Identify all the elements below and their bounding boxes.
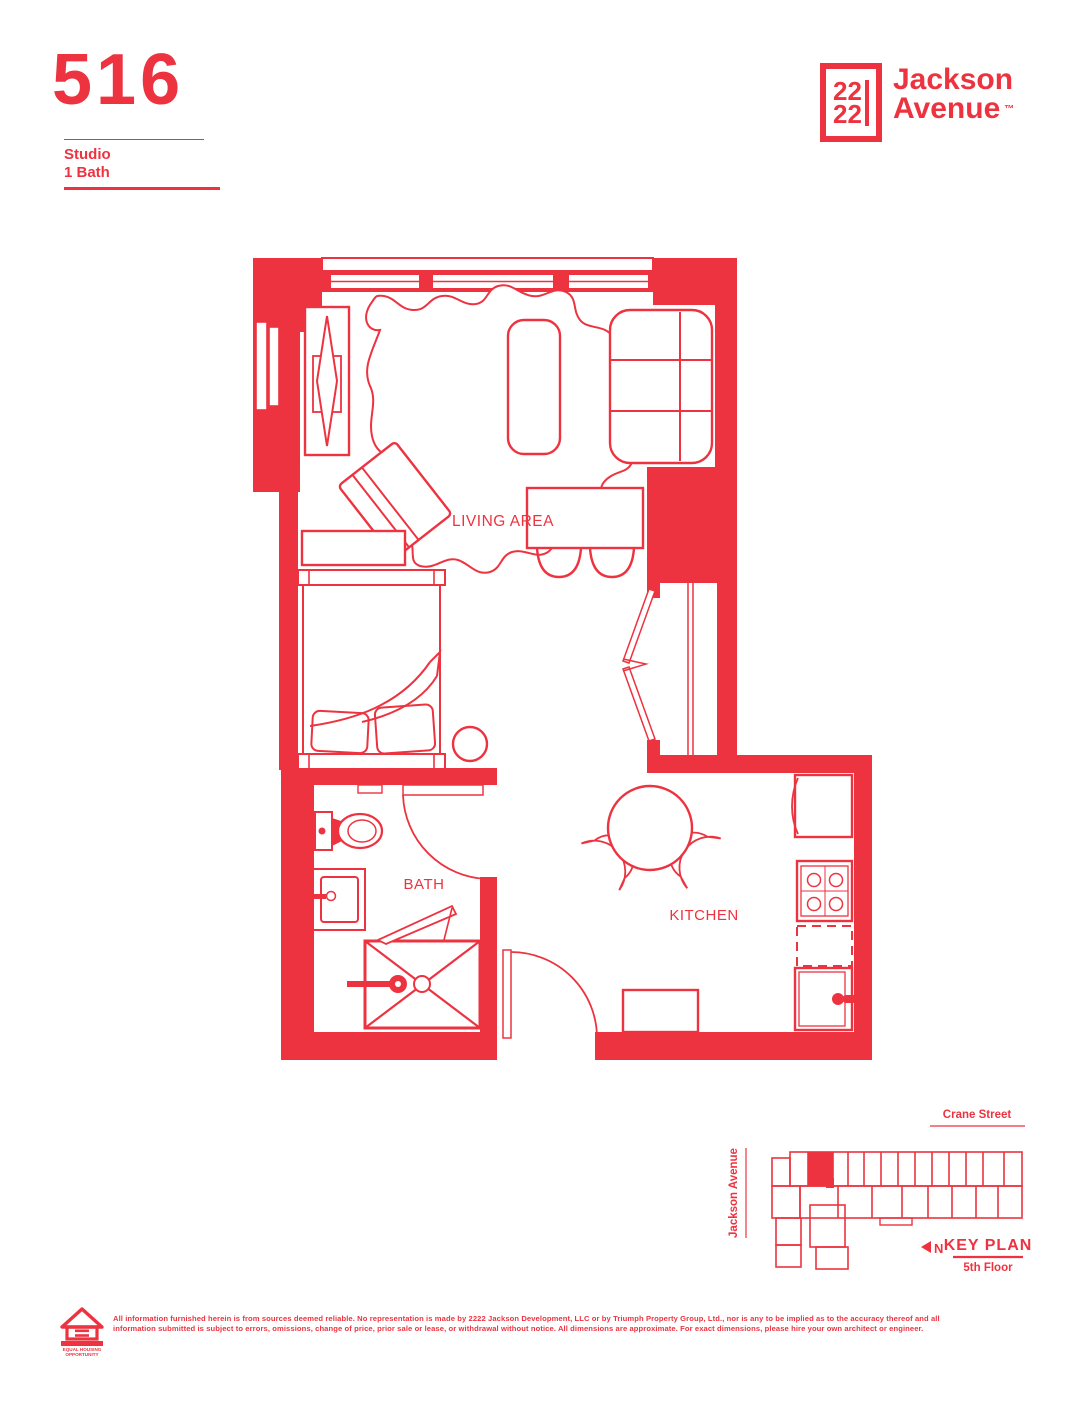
sofa	[610, 310, 712, 463]
eho-caption-line2: OPPORTUNITY	[65, 1352, 98, 1357]
label-bath: BATH	[404, 876, 445, 893]
label-living-area: LIVING AREA	[452, 513, 554, 530]
tv-console	[305, 307, 349, 455]
bar-table	[527, 488, 643, 577]
svg-text:N: N	[934, 1241, 943, 1256]
round-stool	[453, 727, 487, 761]
keyplan-crane-street: Crane Street	[943, 1109, 1012, 1121]
equal-housing-logo: EQUAL HOUSING OPPORTUNITY	[61, 1309, 103, 1357]
key-plan: Crane Street Jackson Avenue	[728, 1109, 1032, 1274]
pillow	[311, 711, 369, 754]
stove	[797, 861, 852, 921]
entry-door	[503, 950, 597, 1038]
keyplan-jackson-avenue: Jackson Avenue	[728, 1148, 740, 1238]
stool-right	[590, 548, 634, 577]
dresser	[302, 531, 405, 565]
north-arrow: N	[921, 1241, 943, 1256]
dining-table	[608, 786, 692, 870]
disclaimer-line1: All information furnished herein is from…	[113, 1314, 975, 1324]
closet	[623, 583, 693, 755]
toilet	[315, 812, 382, 850]
floorplan-page: 516 Studio 1 Bath 22 22 Jackson Avenue™	[0, 0, 1088, 1408]
bathroom	[300, 785, 487, 1028]
keyplan-title: KEY PLAN	[944, 1237, 1033, 1254]
drawing-canvas: LIVING AREA BATH KITCHEN Crane Street Ja…	[0, 0, 1088, 1408]
shower	[347, 906, 480, 1028]
dining-set	[581, 786, 720, 890]
window-band-top	[322, 258, 653, 292]
coffee-table	[508, 320, 560, 454]
floor-plan-drawing: LIVING AREA BATH KITCHEN	[253, 258, 872, 1060]
counter	[797, 926, 852, 966]
refrigerator	[795, 775, 852, 837]
disclaimer: All information furnished herein is from…	[113, 1314, 975, 1333]
bed	[298, 570, 445, 769]
disclaimer-line2: information submitted is subject to erro…	[113, 1324, 975, 1334]
kitchen-mat	[623, 990, 698, 1032]
bifold-door-upper	[623, 589, 655, 663]
label-kitchen: KITCHEN	[669, 907, 738, 924]
window-left	[256, 322, 279, 410]
house-body-icon	[67, 1327, 97, 1339]
pillow	[374, 704, 435, 754]
house-roof-icon	[62, 1309, 102, 1327]
bifold-door-lower	[623, 667, 655, 741]
keyplan-floor: 5th Floor	[963, 1262, 1013, 1274]
kitchen-sink	[795, 968, 859, 1030]
